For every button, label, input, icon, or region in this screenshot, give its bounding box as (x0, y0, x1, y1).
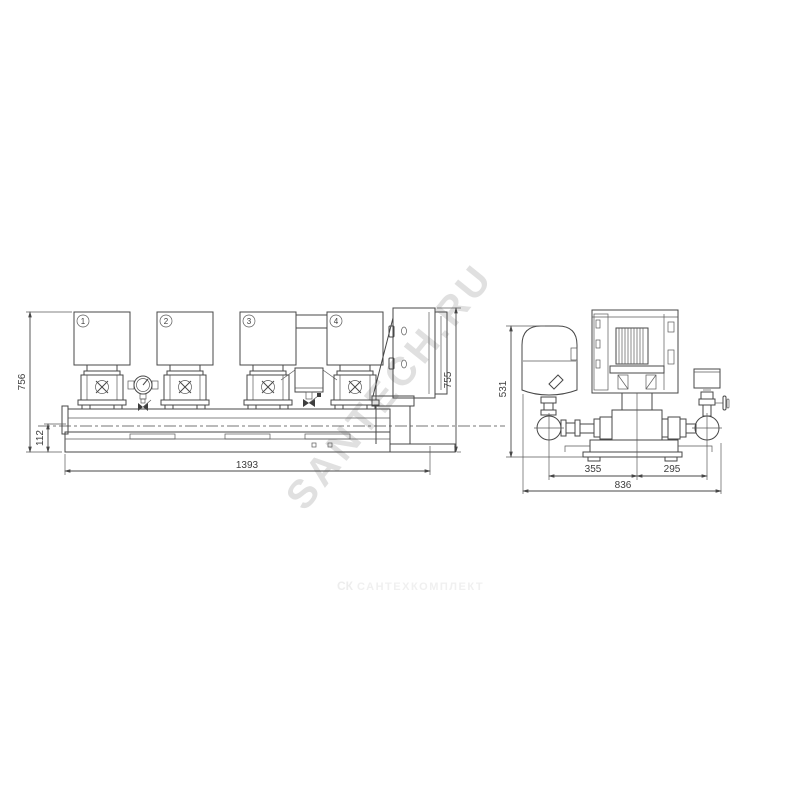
dim-span-right: 295 (664, 464, 681, 475)
dim-height-right: 755 (443, 371, 454, 388)
motor-bridge (296, 315, 327, 328)
left-pipe-flange (534, 413, 564, 443)
dim-width: 1393 (236, 460, 259, 471)
dim-base-height: 112 (35, 430, 46, 446)
dim-side-height: 531 (498, 380, 509, 397)
dim-span-left: 355 (585, 464, 602, 475)
side-view: 531 355 295 836 (498, 310, 729, 494)
side-motor-pump (592, 310, 678, 440)
pump-number-label: 1 (81, 317, 86, 326)
pump-number-label: 3 (247, 317, 252, 326)
right-piping (662, 417, 696, 439)
dim-height-left: 756 (17, 373, 28, 390)
pump-unit-1: 1 (74, 312, 130, 409)
diagonal-watermark: SANTECH.RU (278, 256, 502, 519)
pump-unit-3: 3 (240, 312, 296, 409)
pump-number-label: 2 (164, 317, 169, 326)
drawing-svg: SANTECH.RU СК САНТЕХКОМПЛЕКТ 1 (0, 0, 800, 800)
side-pedestal (565, 440, 712, 461)
pressure-gauge (128, 376, 158, 411)
footer-watermark-text: САНТЕХКОМПЛЕКТ (357, 581, 484, 593)
pump-number-label: 4 (334, 317, 339, 326)
manifold-and-base (38, 406, 505, 452)
pump-unit-2: 2 (157, 312, 213, 409)
footer-watermark-logo: СК (337, 579, 354, 593)
right-pipe-flange (692, 413, 722, 443)
technical-drawing-page: SANTECH.RU СК САНТЕХКОМПЛЕКТ 1 (0, 0, 800, 800)
handwheel (723, 396, 726, 410)
dim-side-width: 836 (615, 480, 632, 491)
side-view-dimensions: 531 355 295 836 (498, 326, 721, 494)
actuator-valve (694, 369, 729, 416)
left-piping (561, 417, 612, 439)
